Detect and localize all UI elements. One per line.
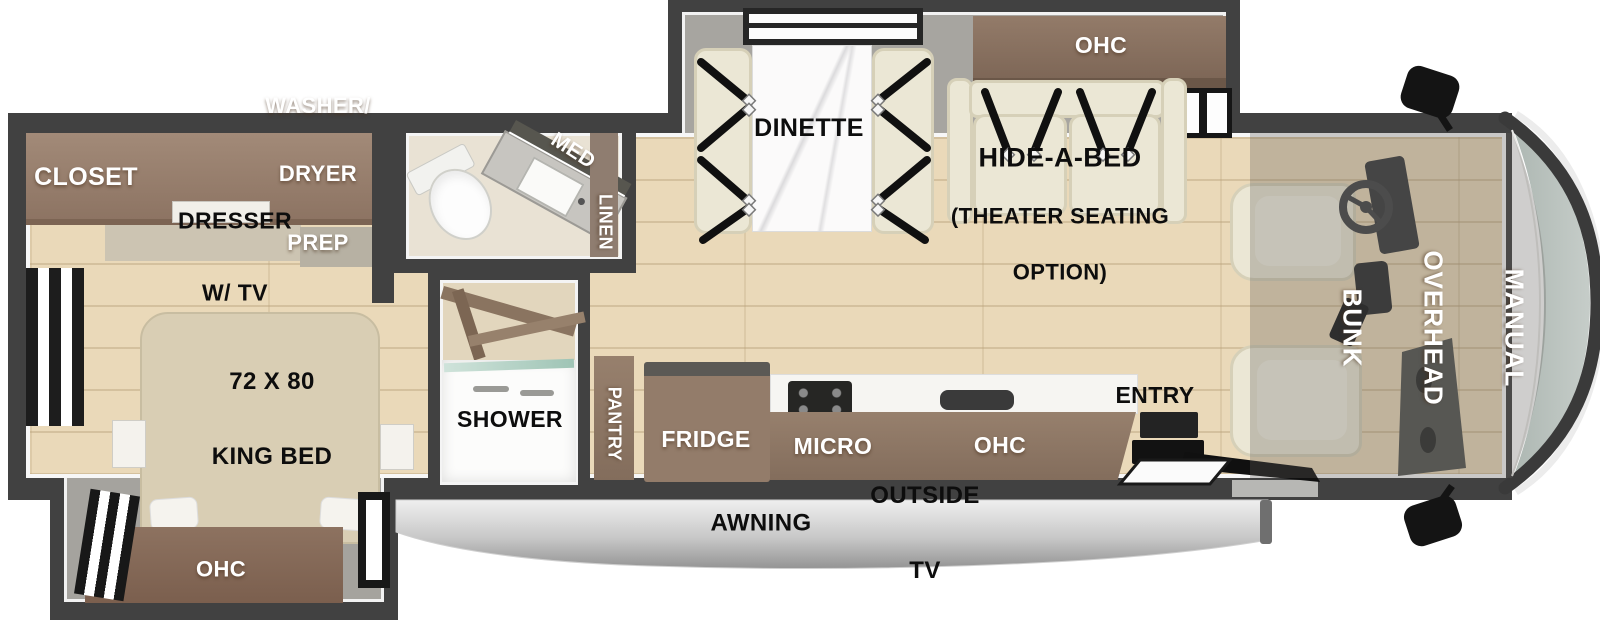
fridge [644, 362, 770, 482]
sofa-backrest [969, 80, 1165, 118]
shower-pan [442, 360, 576, 482]
dinette-bench-right [872, 48, 934, 234]
nightstand-right [380, 424, 414, 470]
dinette-table [752, 45, 872, 232]
kitchen-sink [940, 390, 1014, 410]
living-ohc-cabinet [973, 16, 1226, 78]
shower-handle-1 [473, 386, 509, 392]
bedroom-window [26, 268, 84, 426]
windshield-glass [1512, 126, 1590, 480]
awning-label: AWNING [710, 512, 811, 537]
sofa-armrest-right [1161, 78, 1187, 224]
kitchen-lower-cabinets [770, 412, 1136, 480]
bedroom-bath-wall [372, 113, 394, 303]
closet-counter-sink [172, 201, 270, 223]
linen-cabinet [590, 133, 618, 257]
entry-door-threshold [1232, 480, 1318, 497]
rv-floorplan: CLOSET WASHER/ DRYER PREP DRESSER W/ TV … [0, 0, 1600, 627]
awning-shape [396, 500, 1268, 568]
passenger-seat-cushion [1257, 360, 1347, 440]
driver-seat [1230, 183, 1356, 281]
front-cap-trim [1516, 114, 1600, 492]
living-window [1180, 88, 1232, 138]
passenger-seat [1230, 345, 1362, 457]
dinette-window [743, 8, 923, 45]
dinette-bench-left [694, 48, 752, 234]
driver-seat-cushion [1255, 196, 1341, 266]
entry-step-lower [1132, 440, 1204, 464]
faucet [577, 197, 587, 207]
bedroom-slide-window-right [358, 492, 390, 588]
windshield-frame [1505, 118, 1597, 488]
entry-step-upper [1140, 412, 1198, 438]
windshield-inner-trim [1512, 130, 1540, 476]
outside-tv-line2: TV [870, 559, 979, 584]
nightstand-left [112, 420, 146, 468]
shower-handle-2 [520, 390, 554, 396]
dresser-step [300, 227, 376, 267]
sofa-cushion-left [973, 114, 1067, 216]
sofa-cushion-right [1069, 114, 1161, 216]
dresser-counter [105, 225, 301, 261]
pantry-cabinet [594, 356, 634, 480]
awning-end-cap [1260, 500, 1272, 544]
